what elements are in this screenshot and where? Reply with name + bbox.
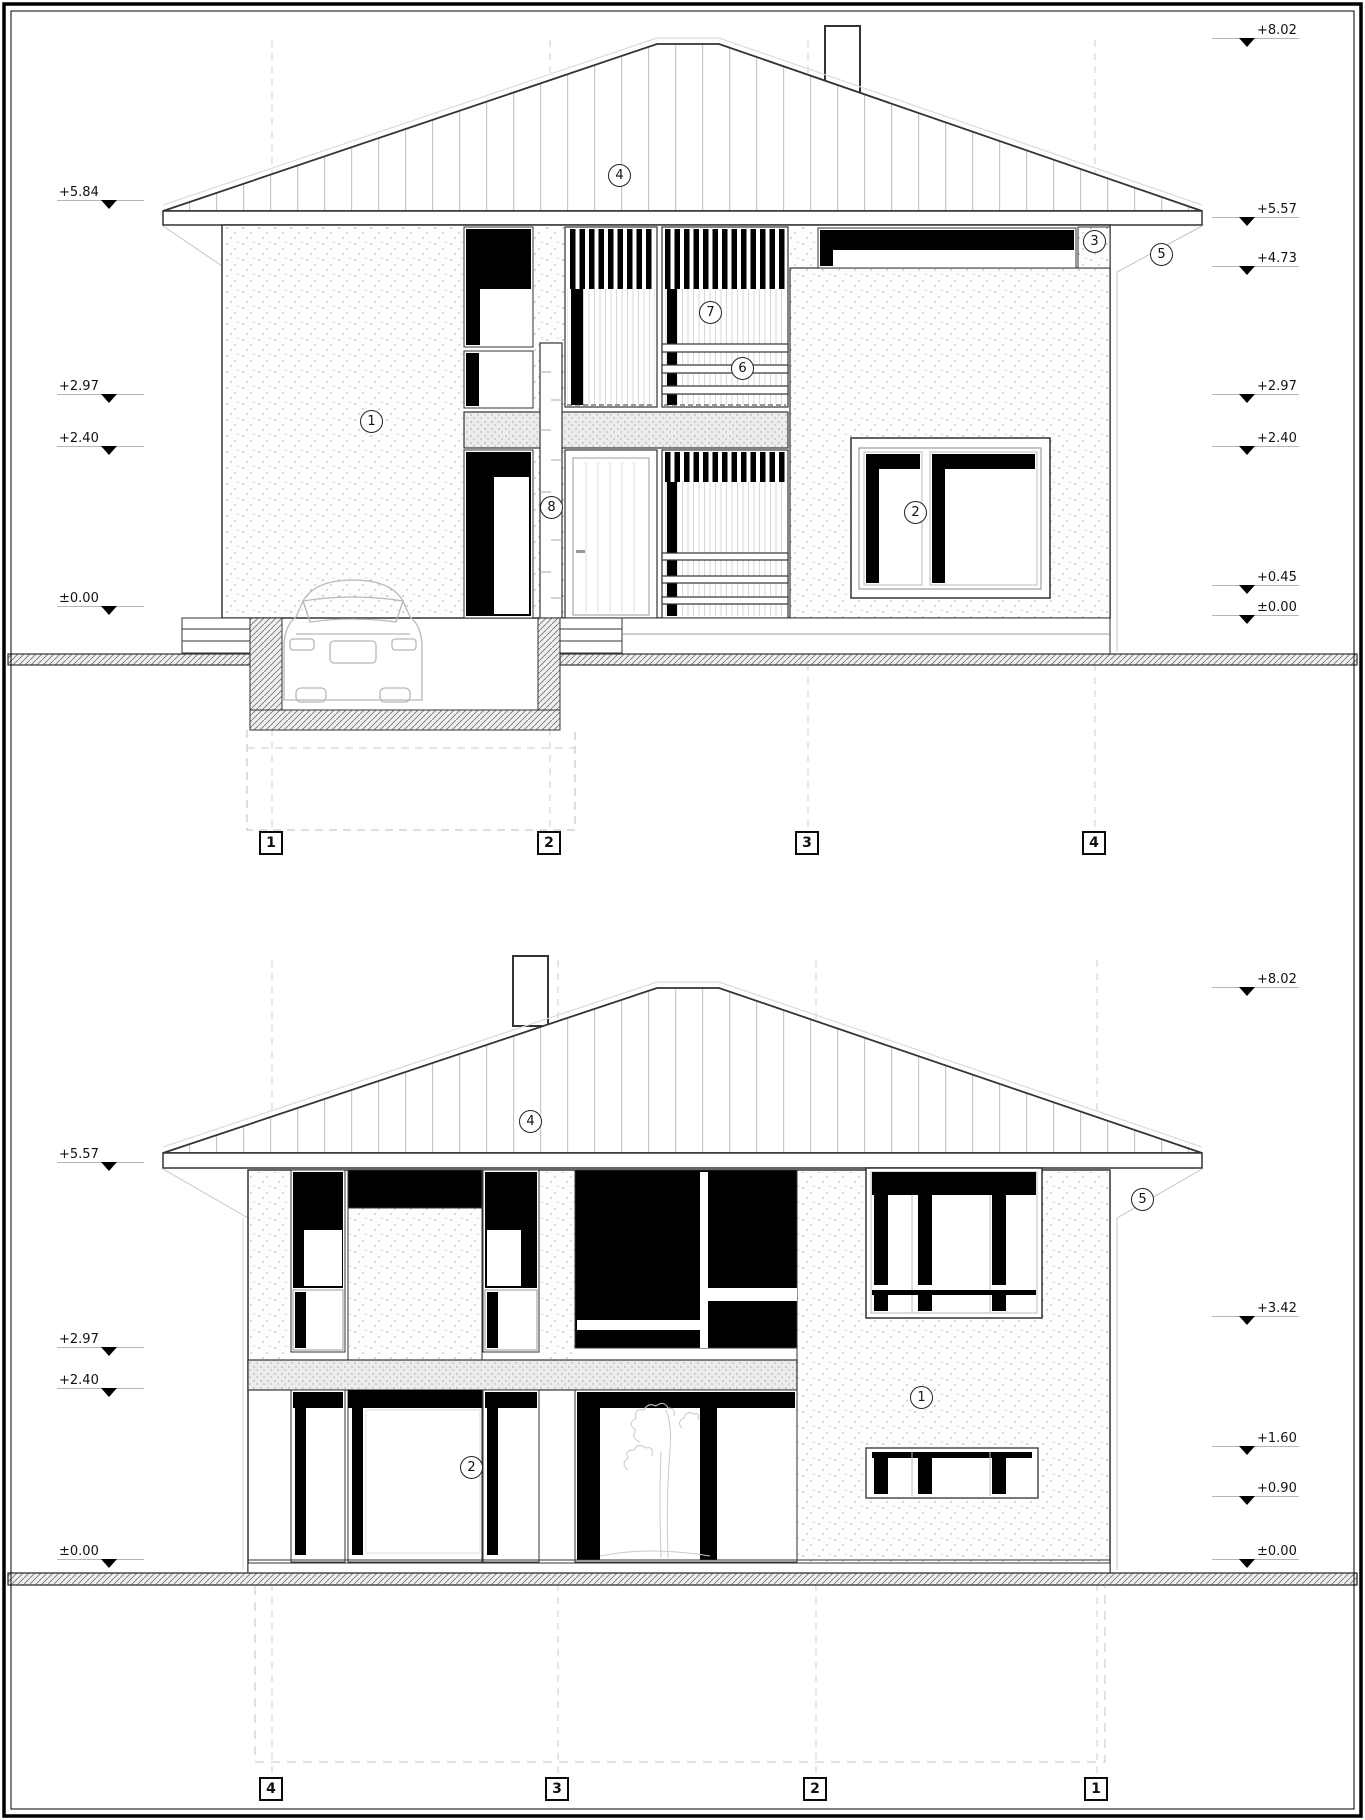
level-triangle-icon	[101, 200, 117, 209]
level-marker: +2.40	[57, 429, 144, 447]
callout-band: 3	[1083, 230, 1106, 253]
level-value: +5.57	[57, 1147, 101, 1162]
level-triangle-icon	[1239, 1496, 1255, 1505]
grid-bubble: 3	[795, 831, 819, 855]
balcony-railing	[662, 344, 788, 394]
ground-window-left	[291, 1390, 345, 1562]
floor-slab-band	[248, 1360, 797, 1390]
level-value: +2.40	[57, 431, 101, 446]
level-value: +0.90	[1255, 1481, 1299, 1496]
top-elevation	[8, 26, 1357, 830]
level-value: +2.97	[57, 379, 101, 394]
level-value: +2.40	[57, 1373, 101, 1388]
level-marker: ±0.00	[1212, 1542, 1299, 1560]
level-value: +3.42	[1255, 1301, 1299, 1316]
grid-bubble: 3	[545, 1777, 569, 1801]
level-triangle-icon	[101, 1347, 117, 1356]
level-marker: +2.97	[1212, 377, 1299, 395]
grid-bubble: 4	[1082, 831, 1106, 855]
level-value: +0.45	[1255, 570, 1299, 585]
level-marker: +2.40	[1212, 429, 1299, 447]
level-value: ±0.00	[1255, 1544, 1299, 1559]
grid-bubble: 2	[803, 1777, 827, 1801]
roof-fascia	[163, 1153, 1202, 1168]
level-triangle-icon	[1239, 217, 1255, 226]
callout-eave: 5	[1131, 1188, 1154, 1211]
level-triangle-icon	[1239, 585, 1255, 594]
roof-fascia	[163, 211, 1202, 225]
level-value: ±0.00	[57, 1544, 101, 1559]
level-value: +8.02	[1255, 972, 1299, 987]
elevation-linework	[0, 0, 1365, 1820]
level-triangle-icon	[101, 1388, 117, 1397]
level-triangle-icon	[1239, 38, 1255, 47]
level-marker: +4.73	[1212, 249, 1299, 267]
entry-door	[565, 450, 657, 618]
upper-window-mid	[483, 1170, 539, 1352]
upper-window-band	[348, 1170, 482, 1208]
upper-window-left	[291, 1170, 345, 1352]
level-value: +4.73	[1255, 251, 1299, 266]
level-triangle-icon	[101, 1162, 117, 1171]
plinth	[248, 1563, 1110, 1573]
callout-pilaster: 8	[540, 496, 563, 519]
level-triangle-icon	[1239, 615, 1255, 624]
right-lower-window	[866, 1448, 1038, 1498]
architectural-sheet: +5.84 +2.97 +2.40 ±0.00 +8.02 +5.57 +4.7…	[0, 0, 1365, 1820]
level-value: ±0.00	[1255, 600, 1299, 615]
level-value: +1.60	[1255, 1431, 1299, 1446]
callout-window: 2	[904, 501, 927, 524]
bottom-elevation	[8, 956, 1357, 1775]
level-marker: ±0.00	[57, 1542, 144, 1560]
ground-glazing-center	[575, 1390, 797, 1562]
level-value: +5.84	[57, 185, 101, 200]
level-marker: ±0.00	[1212, 598, 1299, 616]
level-triangle-icon	[101, 1559, 117, 1568]
level-marker: +0.45	[1212, 568, 1299, 586]
floor-slab-band	[464, 412, 788, 448]
grid-bubble: 1	[1084, 1777, 1108, 1801]
level-marker: +5.57	[57, 1145, 144, 1163]
level-marker: +3.42	[1212, 1299, 1299, 1317]
level-marker: ±0.00	[57, 589, 144, 607]
level-marker: +2.97	[57, 377, 144, 395]
grid-bubble: 2	[537, 831, 561, 855]
level-marker: +8.02	[1212, 21, 1299, 39]
level-value: +5.57	[1255, 202, 1299, 217]
level-triangle-icon	[101, 446, 117, 455]
callout-window: 2	[460, 1456, 483, 1479]
grade-line	[8, 654, 263, 665]
louver-panel-lower	[662, 450, 788, 618]
level-value: +2.97	[1255, 379, 1299, 394]
foundation-dashed	[255, 1586, 1105, 1762]
level-triangle-icon	[1239, 266, 1255, 275]
callout-railing: 6	[731, 357, 754, 380]
callout-roof: 4	[519, 1110, 542, 1133]
stucco-field	[348, 1208, 482, 1360]
level-marker: +5.57	[1212, 200, 1299, 218]
level-value: +8.02	[1255, 23, 1299, 38]
louver-panel-right	[662, 227, 788, 407]
level-triangle-icon	[1239, 394, 1255, 403]
callout-wall: 1	[360, 410, 383, 433]
level-marker: +2.97	[57, 1330, 144, 1348]
grid-bubble: 4	[259, 1777, 283, 1801]
level-value: +2.97	[57, 1332, 101, 1347]
level-triangle-icon	[1239, 1446, 1255, 1455]
level-value: +2.40	[1255, 431, 1299, 446]
chimney	[513, 956, 548, 1026]
level-marker: +5.84	[57, 183, 144, 201]
level-triangle-icon	[1239, 1316, 1255, 1325]
right-upper-window	[866, 1168, 1042, 1318]
level-marker: +2.40	[57, 1371, 144, 1389]
level-triangle-icon	[101, 606, 117, 615]
roof	[163, 44, 1202, 211]
eave-soffit	[1117, 226, 1202, 652]
grid-bubble: 1	[259, 831, 283, 855]
stone-pilaster	[540, 343, 562, 618]
level-marker: +8.02	[1212, 970, 1299, 988]
level-value: ±0.00	[57, 591, 101, 606]
louver-panel-left	[565, 227, 657, 407]
clerestory-window	[818, 228, 1076, 268]
level-marker: +1.60	[1212, 1429, 1299, 1447]
level-marker: +0.90	[1212, 1479, 1299, 1497]
grade-line	[8, 1573, 1357, 1585]
roof	[163, 988, 1202, 1153]
level-triangle-icon	[101, 394, 117, 403]
level-triangle-icon	[1239, 1559, 1255, 1568]
level-triangle-icon	[1239, 987, 1255, 996]
callout-louvers: 7	[699, 301, 722, 324]
ground-window-mid	[483, 1390, 539, 1562]
plinth	[622, 618, 1110, 654]
level-triangle-icon	[1239, 446, 1255, 455]
eave-soffit	[1117, 1169, 1202, 1570]
ground-window-band	[348, 1390, 482, 1562]
callout-eave: 5	[1150, 243, 1173, 266]
upper-glazing-center	[575, 1170, 797, 1348]
callout-roof: 4	[608, 164, 631, 187]
callout-wall: 1	[910, 1386, 933, 1409]
right-window	[851, 438, 1050, 598]
